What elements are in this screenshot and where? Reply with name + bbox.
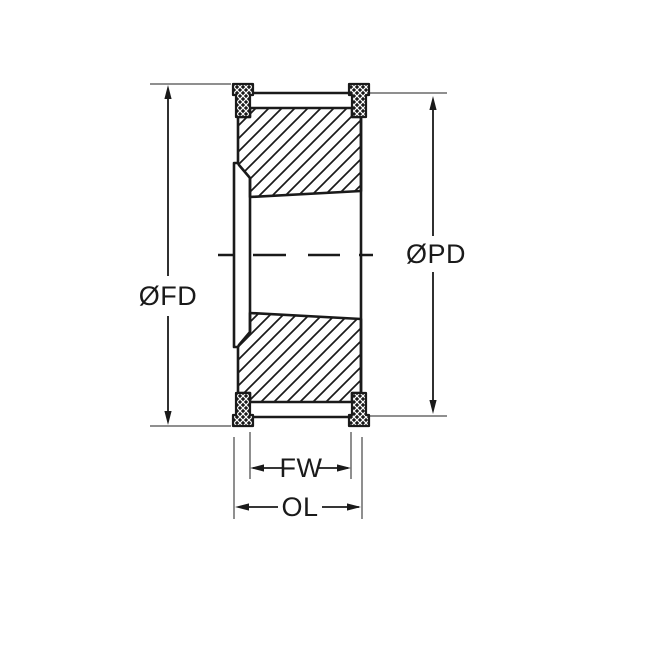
flange-top-right (349, 84, 369, 117)
flange-bottom-left (233, 393, 253, 426)
upper-body-hatch-section (238, 108, 361, 197)
face-width-label: FW (280, 453, 323, 483)
pitch-diameter-label: ØPD (406, 239, 466, 269)
pulley-drawing-canvas: ØFD ØPD FW OL (0, 0, 670, 670)
pulley-cross-section-diagram: ØFD ØPD FW OL (0, 0, 670, 670)
flange-top-left (233, 84, 253, 117)
flange-diameter-label: ØFD (139, 281, 198, 311)
lower-body-hatch-section (238, 313, 361, 402)
overall-length-label: OL (281, 492, 318, 522)
flange-bottom-right (349, 393, 369, 426)
